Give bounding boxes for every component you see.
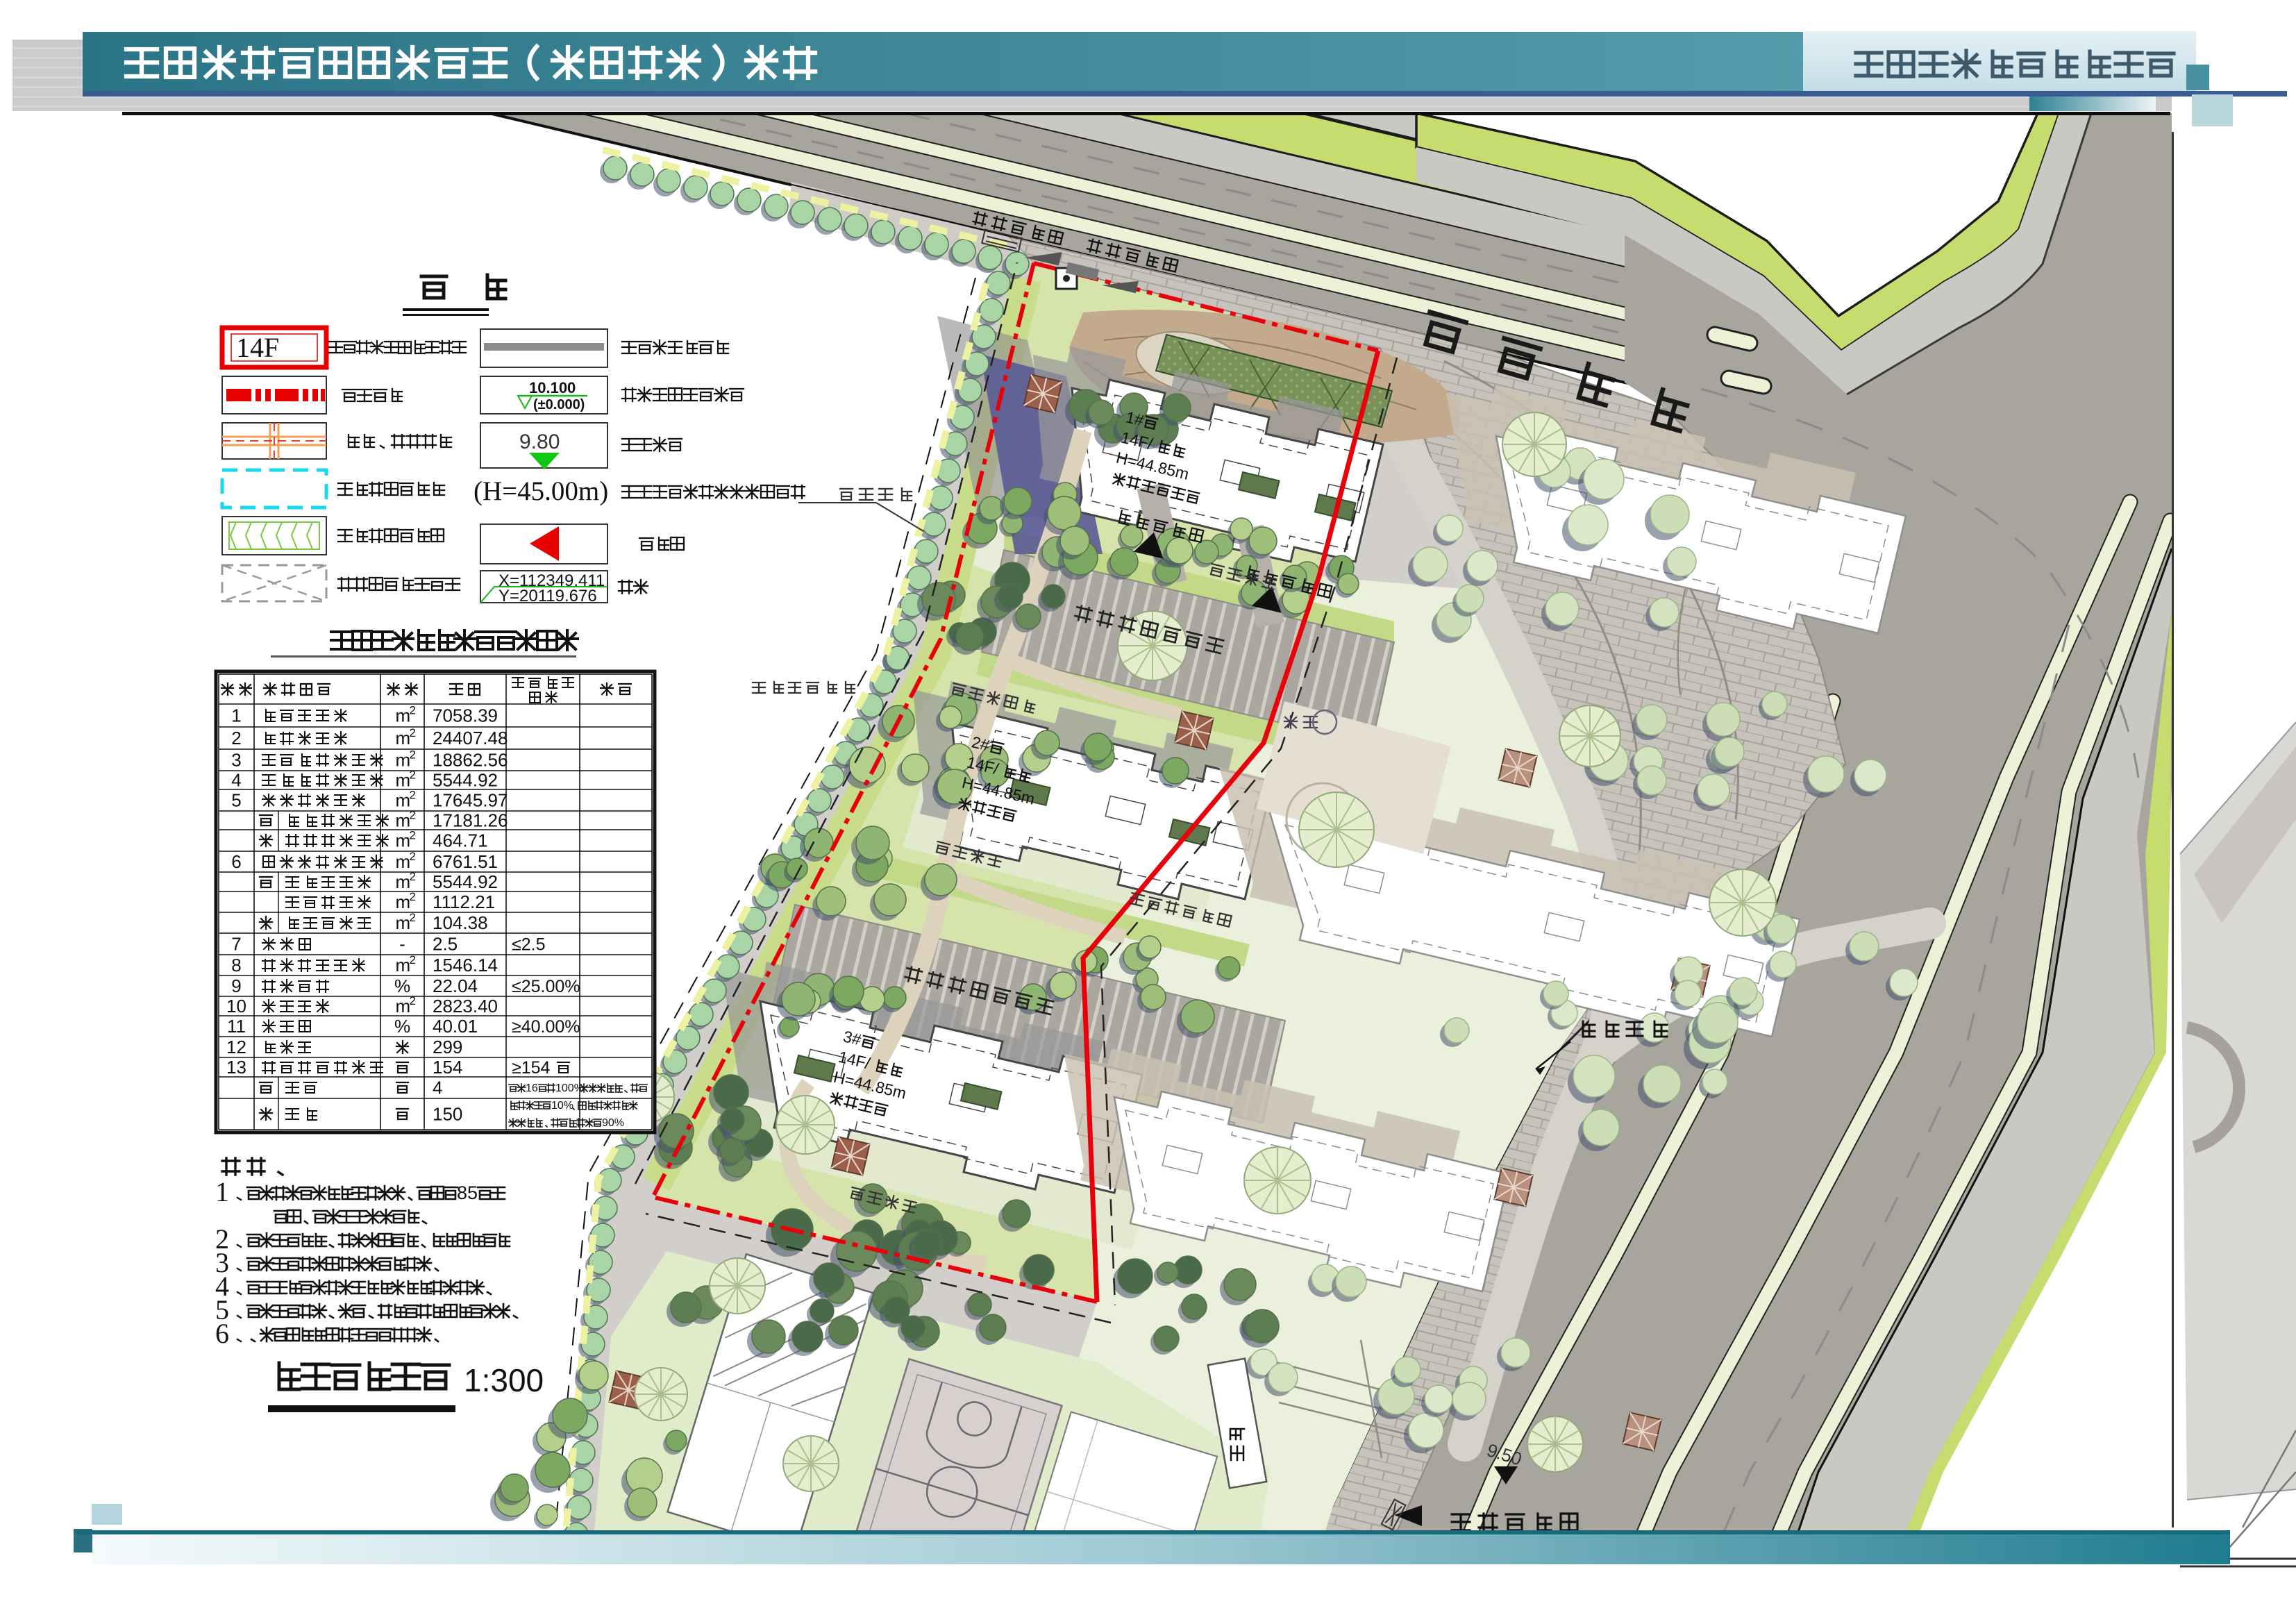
svg-text:1: 1: [231, 705, 241, 726]
svg-text:90%: 90%: [602, 1117, 624, 1129]
svg-text:6: 6: [231, 851, 241, 872]
svg-text:m: m: [396, 728, 411, 748]
svg-text:2: 2: [410, 829, 416, 842]
svg-text:2: 2: [410, 769, 416, 782]
svg-text:2: 2: [410, 870, 416, 883]
svg-text:17181.26: 17181.26: [433, 810, 508, 831]
svg-text:4: 4: [231, 770, 241, 791]
svg-text:3: 3: [231, 750, 241, 771]
svg-text:m: m: [396, 851, 411, 872]
svg-text:4: 4: [433, 1078, 442, 1098]
svg-text:18862.56: 18862.56: [433, 750, 508, 771]
svg-text:9.80: 9.80: [519, 430, 560, 453]
svg-text:11: 11: [227, 1016, 246, 1037]
svg-text:7058.39: 7058.39: [433, 705, 498, 726]
svg-text:≥40.00%: ≥40.00%: [512, 1017, 580, 1037]
svg-text:5544.92: 5544.92: [433, 871, 498, 892]
svg-text:5: 5: [231, 790, 241, 811]
svg-text:9: 9: [231, 976, 241, 996]
svg-text:(±0.000): (±0.000): [533, 397, 585, 412]
svg-text:m: m: [396, 912, 411, 933]
svg-text:1546.14: 1546.14: [433, 955, 498, 976]
svg-text:m: m: [396, 891, 411, 912]
svg-text:1:300: 1:300: [464, 1362, 544, 1398]
svg-text:299: 299: [433, 1037, 462, 1057]
svg-text:m: m: [396, 996, 411, 1016]
svg-text:7: 7: [231, 934, 241, 955]
svg-text:24407.48: 24407.48: [433, 728, 508, 748]
svg-text:Y=20119.676: Y=20119.676: [498, 587, 597, 605]
svg-text:2: 2: [410, 994, 416, 1007]
svg-text:%: %: [394, 1016, 410, 1037]
svg-text:≤2.5: ≤2.5: [512, 935, 545, 955]
svg-text:m: m: [396, 770, 411, 791]
svg-text:≥154: ≥154: [512, 1058, 551, 1078]
svg-text:104.38: 104.38: [433, 912, 488, 933]
svg-text:150: 150: [433, 1104, 462, 1125]
svg-text:6761.51: 6761.51: [433, 851, 498, 872]
svg-text:m: m: [396, 705, 411, 726]
svg-text:12: 12: [226, 1037, 246, 1057]
svg-text:16: 16: [526, 1082, 538, 1094]
svg-text:2: 2: [410, 726, 416, 739]
svg-text:2: 2: [410, 890, 416, 903]
svg-text:2: 2: [410, 748, 416, 762]
svg-text:2: 2: [410, 911, 416, 924]
svg-text:5544.92: 5544.92: [433, 770, 498, 791]
svg-text:6: 6: [215, 1318, 229, 1349]
svg-text:≤25.00%: ≤25.00%: [512, 977, 580, 996]
svg-text:1: 1: [215, 1176, 229, 1207]
svg-text:85: 85: [457, 1182, 478, 1203]
svg-text:m: m: [396, 830, 411, 851]
svg-text:40.01: 40.01: [433, 1016, 478, 1037]
svg-text:2: 2: [410, 953, 416, 966]
svg-text:2823.40: 2823.40: [433, 996, 498, 1016]
svg-text:2.5: 2.5: [433, 934, 458, 955]
svg-text:m: m: [396, 810, 411, 831]
svg-text:(H=45.00m): (H=45.00m): [474, 476, 608, 506]
svg-text:1112.21: 1112.21: [433, 891, 495, 912]
svg-text:10: 10: [226, 996, 246, 1016]
svg-text:%: %: [394, 976, 410, 996]
svg-text:2: 2: [410, 850, 416, 863]
svg-text:10%: 10%: [551, 1100, 573, 1112]
svg-text:m: m: [396, 790, 411, 811]
svg-text:14F: 14F: [236, 332, 279, 363]
svg-text:2: 2: [410, 704, 416, 717]
svg-text:2: 2: [410, 789, 416, 802]
svg-text:100%: 100%: [555, 1082, 584, 1094]
svg-text:8: 8: [231, 955, 241, 976]
svg-text:17645.97: 17645.97: [433, 790, 508, 811]
svg-text:2: 2: [231, 728, 241, 748]
svg-text:m: m: [396, 955, 411, 976]
svg-text:13: 13: [226, 1057, 246, 1078]
svg-text:464.71: 464.71: [433, 830, 488, 851]
svg-text:m: m: [396, 750, 411, 771]
svg-text:154: 154: [433, 1057, 462, 1078]
svg-text:22.04: 22.04: [433, 976, 478, 996]
svg-text:2: 2: [410, 809, 416, 822]
svg-text:-: -: [399, 934, 405, 955]
svg-text:m: m: [396, 871, 411, 892]
svg-text:10.100: 10.100: [529, 379, 576, 396]
